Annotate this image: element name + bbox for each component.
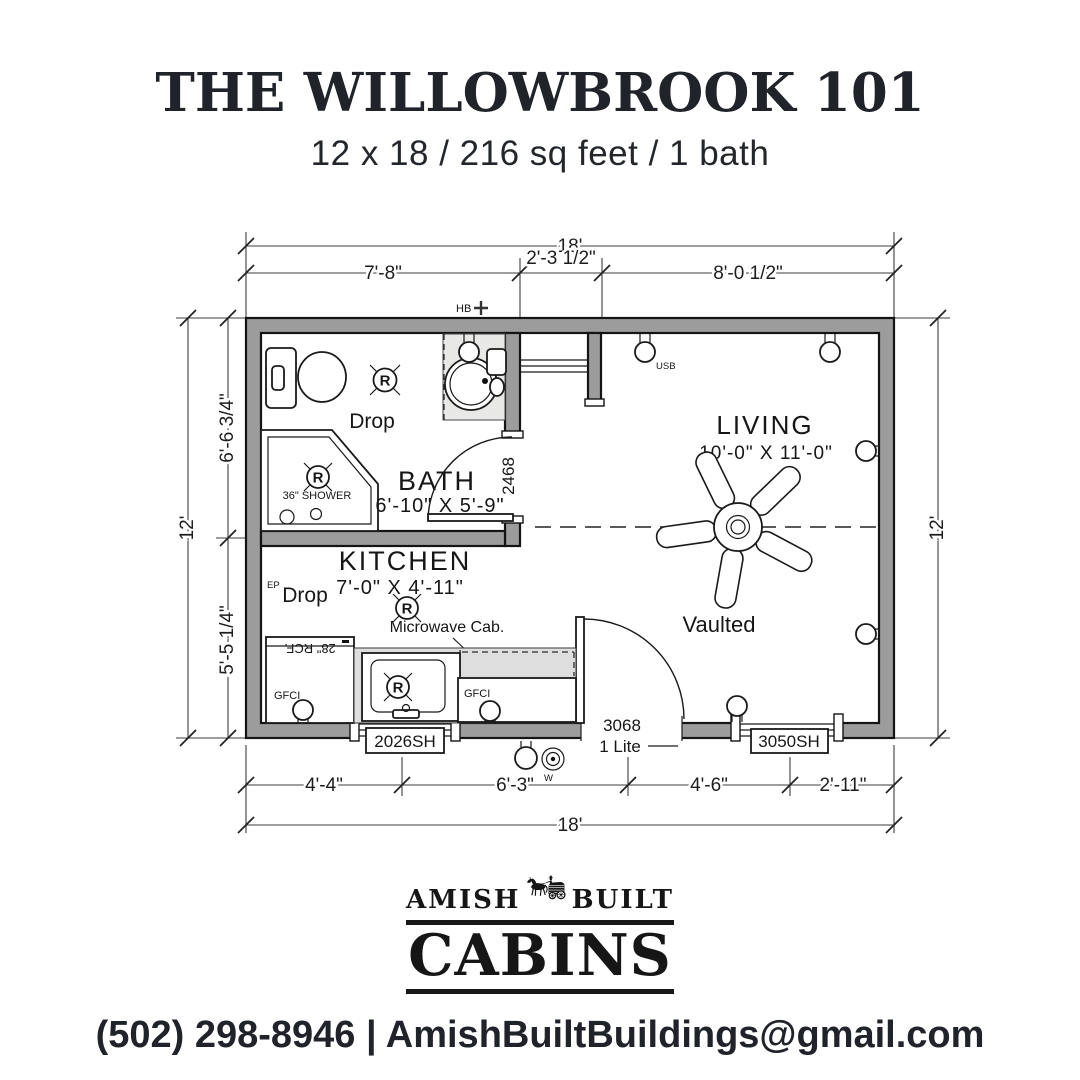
water-spigot: W: [542, 748, 564, 784]
svg-text:GFCI: GFCI: [464, 688, 490, 700]
dim-left-seg1: 6'-6 3/4": [217, 393, 238, 463]
dimensions-bottom: 4'-4" 6'-3" 4'-6" 2'-11" 18': [238, 745, 902, 836]
company-logo: AMISH BUILT CABINS: [406, 856, 674, 994]
bath-room-name: BATH: [398, 466, 476, 496]
dim-left-seg2: 5'-5 1/4": [217, 605, 238, 675]
door-3068-lite-label: 1 Lite: [599, 737, 641, 756]
logo-amish-text: AMISH: [406, 885, 520, 920]
vaulted-label: Vaulted: [683, 612, 756, 637]
window-2026SH-label: 2026SH: [374, 732, 435, 751]
kitchen-ceiling-light: R: [393, 594, 421, 622]
bath-ceiling-light: R: [370, 365, 400, 395]
bath-drop-label: Drop: [349, 410, 395, 433]
dim-left-overall: 12': [177, 516, 198, 541]
dim-bottom-seg2: 6'-3": [496, 775, 534, 796]
kitchen-ep-label: EP: [267, 580, 280, 591]
logo-built-text: BUILT: [572, 885, 674, 920]
fridge-label: 28" RCF.: [284, 641, 336, 656]
logo-divider-bottom: [406, 989, 674, 994]
svg-text:GFCI: GFCI: [274, 690, 300, 702]
dimensions-right: 12': [894, 310, 950, 746]
usb-label: USB: [656, 361, 676, 372]
hose-bib: HB: [456, 301, 488, 315]
floor-plan-drawing: 18' 7'-8" 2'-3 1/2" 8'-0 1/2" 4'-4" 6'-3…: [0, 200, 1080, 850]
contact-info: (502) 298-8946 | AmishBuiltBuildings@gma…: [0, 1014, 1080, 1057]
dim-bottom-seg4: 2'-11": [820, 775, 867, 796]
dim-top-seg1: 7'-8": [364, 263, 402, 284]
svg-text:R: R: [393, 680, 404, 697]
dim-bottom-overall: 18': [558, 815, 583, 836]
living-room-name: LIVING: [716, 410, 813, 440]
page-title: THE WILLOWBROOK 101: [0, 62, 1080, 124]
hose-bib-label: HB: [456, 303, 471, 315]
dim-bottom-seg3: 4'-6": [690, 775, 728, 796]
svg-text:R: R: [380, 373, 391, 390]
water-label: W: [544, 773, 553, 784]
shower-light: R: [304, 463, 332, 491]
dim-top-seg3: 8'-0 1/2": [713, 263, 783, 284]
svg-text:R: R: [313, 470, 324, 487]
svg-text:R: R: [402, 601, 413, 618]
shower-label: 36" SHOWER: [283, 490, 352, 502]
kitchen-room-name: KITCHEN: [339, 546, 472, 576]
kitchen-room-size: 7'-0" X 4'-11": [336, 577, 464, 599]
logo-cabins-text: CABINS: [408, 926, 672, 986]
exterior-outlet: [515, 741, 537, 769]
window-3050SH: 3050SH: [731, 714, 843, 753]
microwave-cab-label: Microwave Cab.: [390, 619, 505, 636]
bath-door-label: 2468: [499, 457, 518, 495]
kitchen-counter: R: [354, 648, 576, 723]
page-subtitle: 12 x 18 / 216 sq feet / 1 bath: [0, 134, 1080, 174]
kitchen-drop-label: Drop: [282, 584, 328, 607]
dim-top-seg2: 2'-3 1/2": [526, 248, 596, 269]
door-3068-label: 3068: [603, 716, 641, 735]
dim-bottom-seg1: 4'-4": [305, 775, 343, 796]
window-3050SH-label: 3050SH: [758, 732, 819, 751]
horse-and-wagon-icon: [526, 856, 565, 920]
dim-right-overall: 12': [927, 516, 948, 541]
living-room-size: 10'-0" X 11'-0": [699, 443, 833, 464]
sink-light: R: [384, 673, 412, 701]
